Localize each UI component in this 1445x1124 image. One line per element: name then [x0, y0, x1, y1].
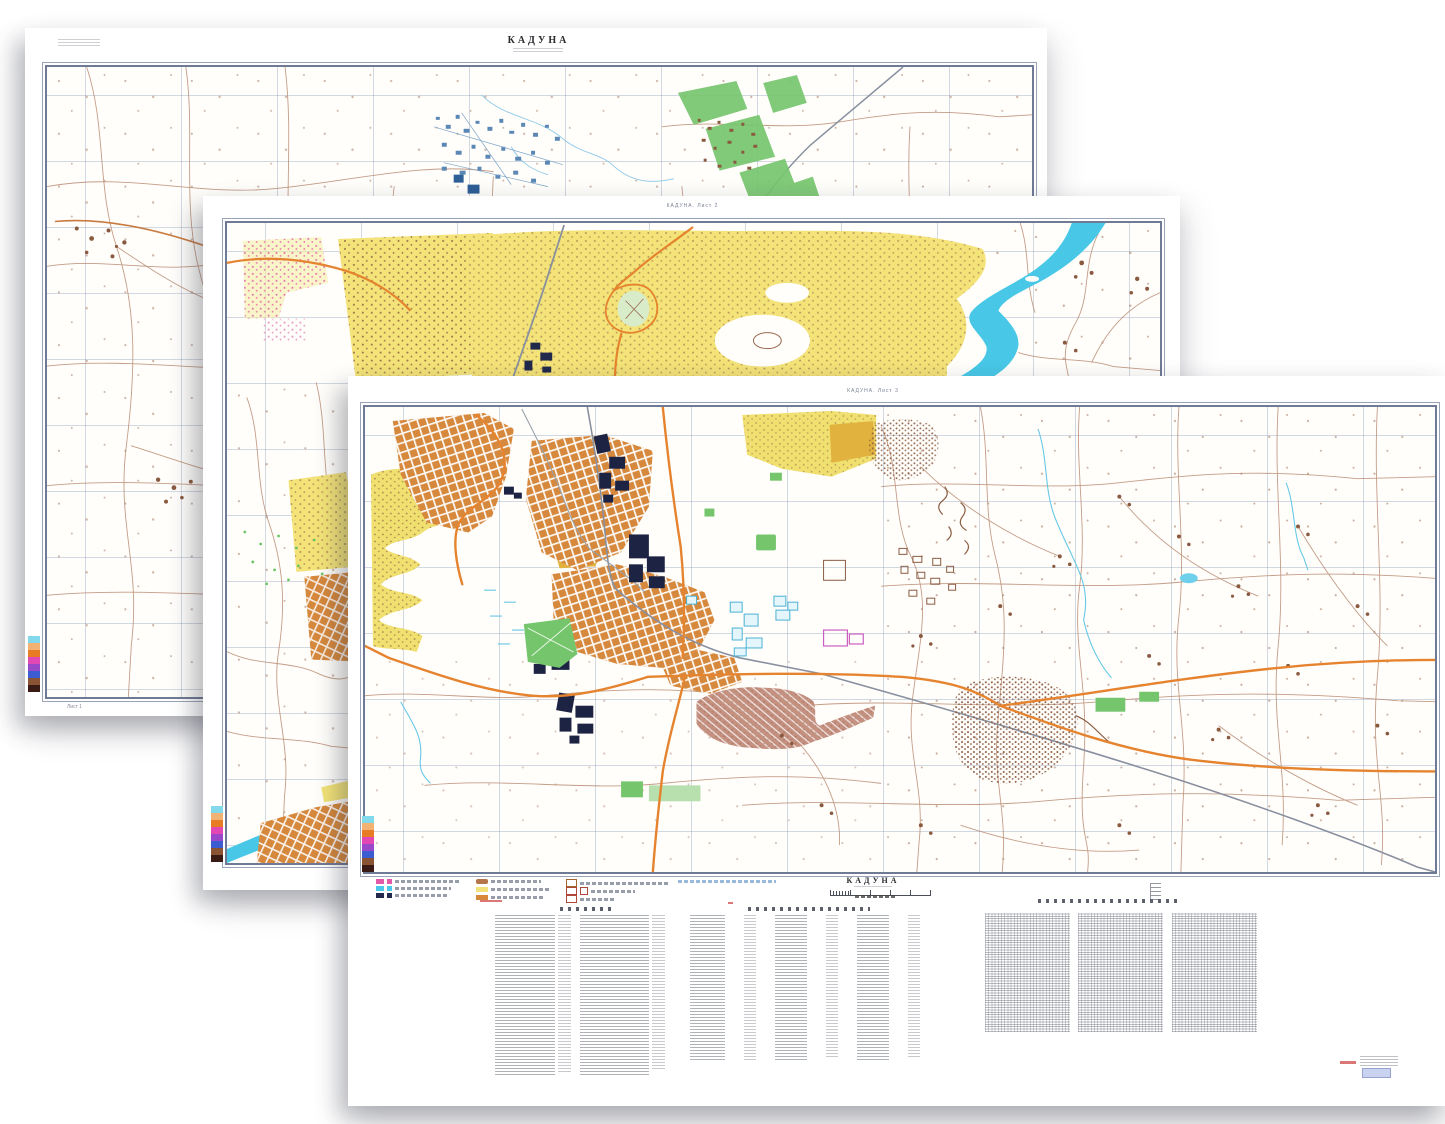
legend-note-greek — [855, 895, 895, 898]
scanned-map-sheets-page: { "document": { "kind": "Soviet military… — [0, 0, 1445, 1124]
description-header-greek — [1038, 899, 1178, 903]
legend-swatch-brown — [476, 879, 488, 884]
legend-swatch-outline-red2 — [566, 895, 577, 903]
sheet1-caption: Лист 1 — [67, 704, 82, 710]
sheet3-map-artwork — [365, 407, 1435, 872]
legend-swatch-outline-brown — [566, 879, 577, 887]
sheet3-footer-subnote-greek — [854, 886, 892, 889]
sheet1-corner-note-greek — [58, 39, 100, 46]
sheet3-print-color-calibration-bar — [362, 816, 374, 872]
map-sheet-3: КАДУНА. Лист 3 — [348, 376, 1445, 1106]
legend-swatch-outline-red — [566, 887, 577, 895]
objects-index-header-greek — [748, 907, 870, 911]
imprint-blue-box — [1362, 1068, 1391, 1078]
registration-mark-center — [728, 902, 733, 904]
sheet3-header: КАДУНА. Лист 3 — [773, 388, 973, 394]
street-index-header-greek — [560, 907, 616, 911]
legend-faint-note-greek — [678, 880, 776, 883]
sheet3-map-frame — [360, 402, 1440, 877]
sheet3-footer-title: КАДУНА — [818, 876, 928, 885]
legend-swatch-cyan — [376, 886, 384, 891]
sheet1-print-color-calibration-bar — [28, 636, 40, 692]
sheet2-header: КАДУНА. Лист 2 — [222, 203, 1163, 209]
sheet2-print-color-calibration-bar — [211, 806, 223, 862]
legend-swatch-navy — [376, 893, 384, 898]
sheet1-title-subnote-greek — [513, 48, 563, 52]
imprint-red-mark — [1340, 1061, 1356, 1064]
sheet1-title: КАДУНА — [42, 35, 1035, 46]
legend-swatch-pink — [376, 879, 384, 884]
legend-swatch-yellow — [476, 887, 488, 892]
registration-mark-left — [480, 900, 502, 902]
